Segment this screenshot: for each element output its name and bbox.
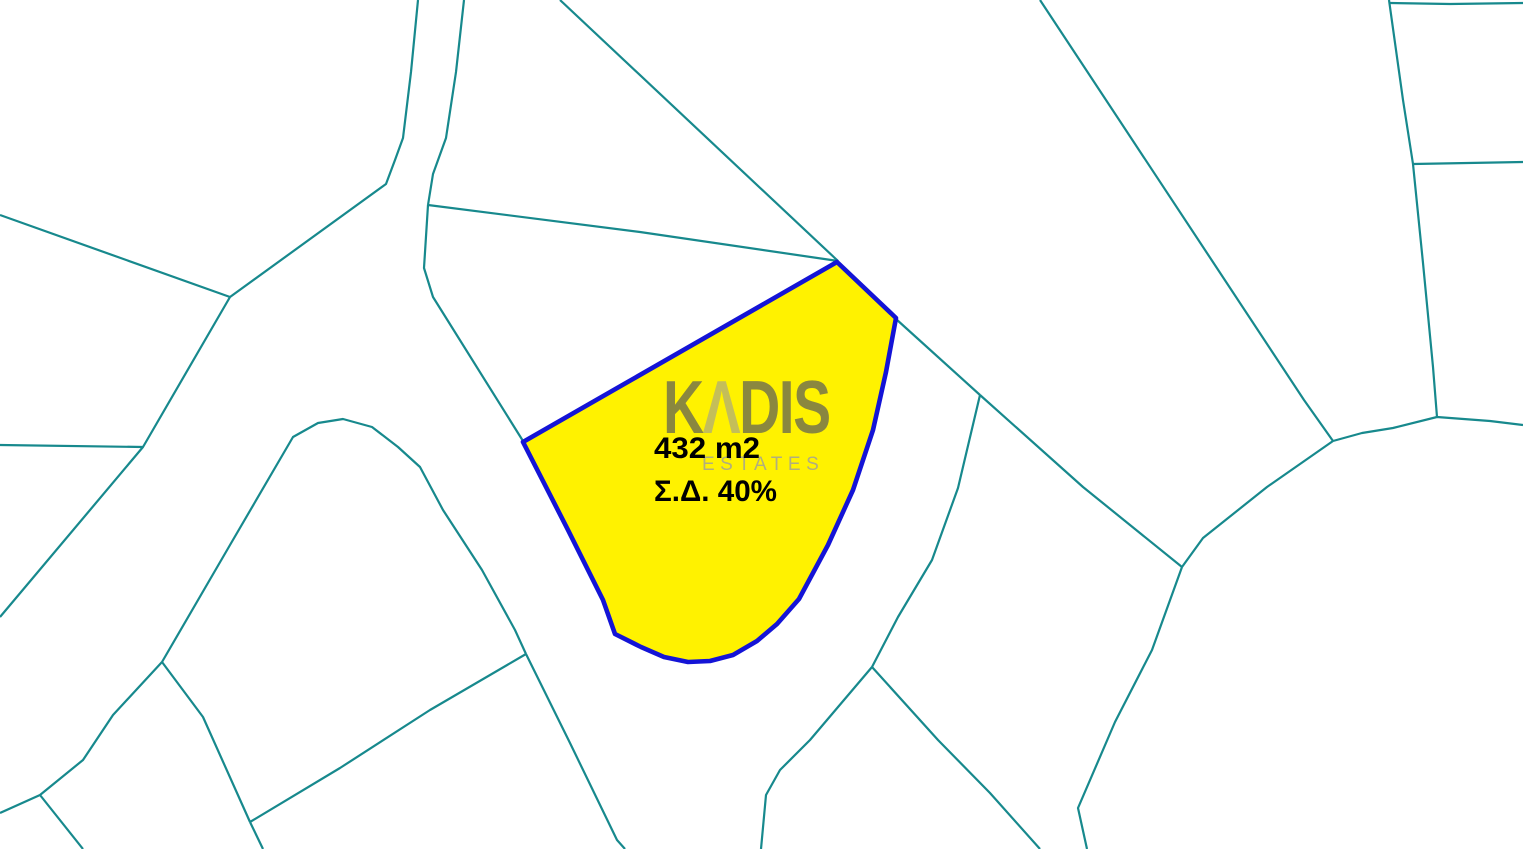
boundary-line-long-ne-diagonal <box>1040 0 1333 441</box>
boundary-line-west-diagonal <box>0 297 230 617</box>
boundary-line-west-upper <box>0 215 230 297</box>
boundary-line-ne-horizontal-top <box>1390 3 1523 4</box>
boundary-line-sw-tail <box>40 795 83 849</box>
boundary-line-j2-to-j3 <box>1182 441 1333 567</box>
boundary-line-sw-branch <box>162 662 250 822</box>
map-canvas[interactable]: KΛDIS ESTATES 432 m2 Σ.Δ. 40% <box>0 0 1523 849</box>
boundary-line-south-cross <box>250 654 526 822</box>
boundary-line-south-cross-tail <box>250 822 263 849</box>
boundary-line-ne-horizontal-2 <box>1413 162 1523 164</box>
boundary-line-nw-curve-1 <box>230 0 418 297</box>
boundary-line-south-steep <box>526 654 625 849</box>
boundary-line-to-parcel-west <box>424 205 523 441</box>
boundary-line-parcel-east-link <box>896 319 980 395</box>
parcel-density-label: Σ.Δ. 40% <box>654 475 777 508</box>
boundary-line-south-center-right <box>872 667 1040 849</box>
boundary-line-sw-curve <box>0 662 162 813</box>
boundary-line-south-center-left <box>761 667 872 849</box>
cadastral-map: KΛDIS ESTATES 432 m2 Σ.Δ. 40% <box>0 0 1523 849</box>
boundary-line-j2-south <box>1078 567 1182 849</box>
boundary-line-north-diagonal <box>560 0 838 261</box>
boundary-line-west-horizontal <box>0 445 143 447</box>
boundary-line-big-parcel-top <box>1333 417 1523 441</box>
boundary-line-round-hill-parcel <box>162 419 526 662</box>
parcel-area-label: 432 m2 <box>654 432 760 465</box>
boundary-line-nw-curve-2 <box>428 0 464 205</box>
boundary-line-east-diagonal-a <box>980 395 1182 567</box>
boundary-line-center-south-link <box>872 395 980 667</box>
boundary-line-above-parcel <box>428 205 838 261</box>
boundary-line-ne-vertical <box>1389 0 1437 417</box>
